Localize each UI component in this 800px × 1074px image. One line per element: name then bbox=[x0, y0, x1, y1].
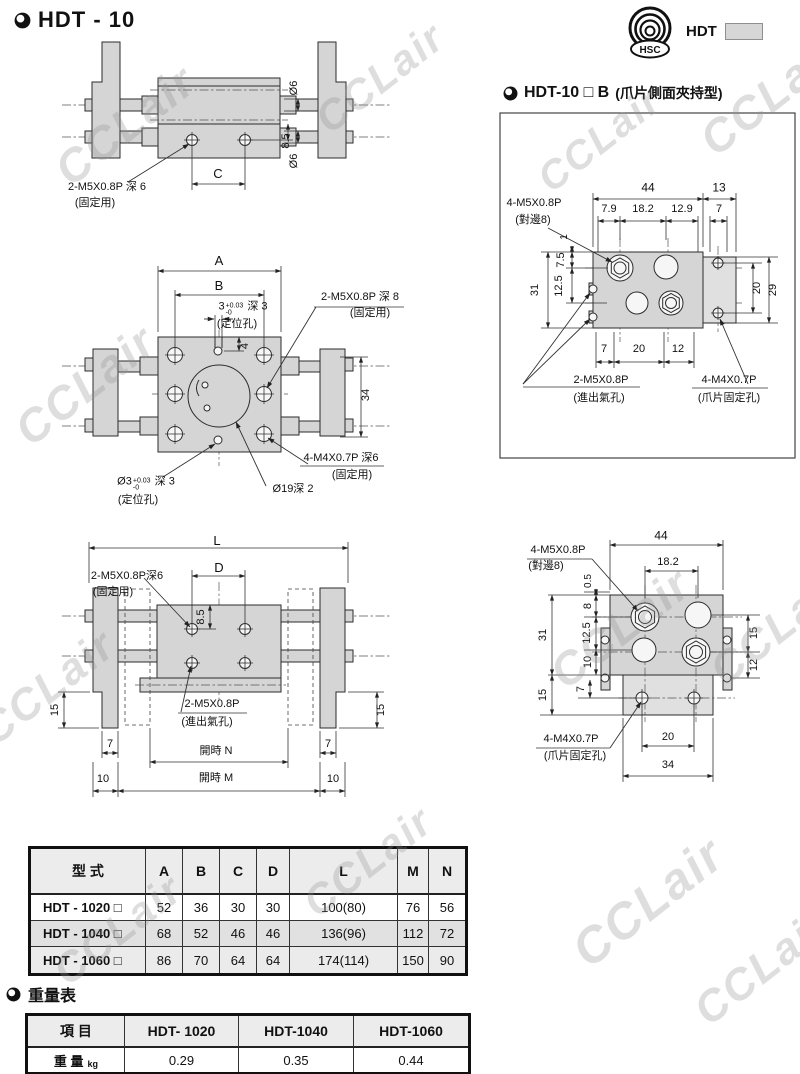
dimension-label: 8 bbox=[583, 603, 595, 609]
dimension-label: 7.9 bbox=[601, 204, 616, 216]
weight-value-cell: 0.35 bbox=[239, 1048, 354, 1072]
spec-value-cell: 112 bbox=[398, 921, 429, 947]
dimension-label: 18.2 bbox=[657, 557, 678, 569]
spec-value-cell: 52 bbox=[146, 895, 183, 921]
dimension-label: 18.2 bbox=[632, 204, 653, 216]
page-title-row: HDT - 10 bbox=[14, 7, 135, 33]
dimension-label: 2-M5X0.8P深6 bbox=[91, 571, 163, 583]
weight-value-cell: 0.29 bbox=[125, 1048, 239, 1072]
dimension-label: 44 bbox=[641, 182, 654, 195]
dimension-label: 15 bbox=[749, 627, 761, 639]
weight-section-title: 重量表 bbox=[28, 982, 76, 1006]
dimension-label: (進出氣孔) bbox=[573, 393, 624, 405]
dimension-label: (固定用) bbox=[350, 308, 390, 320]
dimension-label: Ø3+0.03-0 深 3 bbox=[117, 477, 175, 492]
weight-header-cell: HDT- 1020 bbox=[125, 1016, 239, 1048]
dimension-label: 15 bbox=[538, 689, 550, 701]
dimension-label: (爪片固定孔) bbox=[544, 751, 606, 763]
dimension-label: 2-M5X0.8P 深 8 bbox=[321, 292, 399, 304]
spec-table: 型 式ABCDLMNHDT - 1020 □52363030100(80)765… bbox=[28, 846, 468, 976]
dimension-label: 3+0.03-0 深 3 bbox=[218, 302, 267, 317]
dimension-label: 7 bbox=[576, 686, 588, 692]
spec-value-cell: 64 bbox=[220, 947, 257, 973]
dimension-label: 44 bbox=[654, 530, 667, 543]
dimension-label: C bbox=[213, 167, 222, 181]
dimension-label: 29 bbox=[768, 284, 780, 296]
dimension-label: 10 bbox=[327, 774, 339, 786]
spec-model-cell: HDT - 1060 □ bbox=[31, 947, 146, 973]
spec-value-cell: 56 bbox=[429, 895, 465, 921]
dimension-label: 4-M4X0.7P bbox=[701, 375, 756, 387]
weight-table: 項 目HDT- 1020HDT-1040HDT-1060重 量kg0.290.3… bbox=[25, 1013, 471, 1074]
weight-section-heading: 重量表 bbox=[6, 982, 76, 1006]
dimension-label: (定位孔) bbox=[118, 495, 158, 507]
spec-model-cell: HDT - 1040 □ bbox=[31, 921, 146, 947]
dimension-label: D bbox=[214, 561, 223, 575]
spec-value-cell: 64 bbox=[257, 947, 290, 973]
spec-value-cell: 100(80) bbox=[290, 895, 398, 921]
spec-value-cell: 68 bbox=[146, 921, 183, 947]
model-option-chip bbox=[725, 23, 763, 40]
dimension-label: 15 bbox=[50, 704, 62, 716]
spec-value-cell: 30 bbox=[257, 895, 290, 921]
spec-value-cell: 70 bbox=[183, 947, 220, 973]
spec-header-cell: 型 式 bbox=[31, 849, 146, 895]
dimension-label: 12.5 bbox=[582, 622, 594, 643]
spec-header-cell: B bbox=[183, 849, 220, 895]
drawing-top-view bbox=[62, 42, 392, 190]
section-b-model: HDT-10 □ B bbox=[524, 84, 609, 102]
dimension-label: A bbox=[215, 254, 224, 268]
dimension-label: B bbox=[215, 279, 224, 293]
brand-logo: HSC HDT bbox=[620, 3, 763, 59]
section-b-note: (爪片側面夾持型) bbox=[615, 83, 722, 103]
dimension-label: 34 bbox=[662, 760, 674, 772]
dimension-label: 31 bbox=[530, 284, 542, 296]
dimension-label: 31 bbox=[538, 629, 550, 641]
dimension-label: 開時 M bbox=[199, 773, 233, 785]
dimension-label: 8.5 bbox=[281, 133, 293, 148]
dimension-label: 12.5 bbox=[554, 275, 566, 296]
spec-header-cell: M bbox=[398, 849, 429, 895]
section-bullet-icon bbox=[503, 86, 518, 101]
dimension-label: L bbox=[213, 534, 220, 548]
spec-value-cell: 86 bbox=[146, 947, 183, 973]
dimension-label: 開時 N bbox=[200, 746, 233, 758]
dimension-label: 4 bbox=[240, 343, 252, 349]
spec-value-cell: 90 bbox=[429, 947, 465, 973]
section-bullet-icon bbox=[14, 12, 31, 29]
dimension-label: 4-M5X0.8P bbox=[506, 198, 561, 210]
weight-header-cell: 項 目 bbox=[28, 1016, 125, 1048]
weight-row-label: 重 量kg bbox=[28, 1048, 125, 1072]
spec-value-cell: 36 bbox=[183, 895, 220, 921]
dimension-label: (對邊8) bbox=[528, 561, 563, 573]
spec-value-cell: 30 bbox=[220, 895, 257, 921]
dimension-label: Ø19深 2 bbox=[273, 484, 314, 496]
spec-header-cell: L bbox=[290, 849, 398, 895]
dimension-label: (固定用) bbox=[332, 470, 372, 482]
dimension-label: 2-M5X0.8P bbox=[573, 375, 628, 387]
dimension-label: 8.5 bbox=[196, 609, 208, 624]
dimension-label: 20 bbox=[633, 344, 645, 356]
spec-value-cell: 76 bbox=[398, 895, 429, 921]
weight-value-cell: 0.44 bbox=[354, 1048, 468, 1072]
dimension-label: 12.9 bbox=[671, 204, 692, 216]
dimension-label: (固定用) bbox=[93, 587, 133, 599]
dimension-label: 7 bbox=[107, 739, 113, 751]
dimension-label: 7 bbox=[601, 344, 607, 356]
spec-header-cell: A bbox=[146, 849, 183, 895]
dimension-label: 15 bbox=[376, 704, 388, 716]
weight-unit: kg bbox=[88, 1059, 99, 1072]
dimension-label: 1 bbox=[560, 234, 571, 240]
brand-logo-icon: HSC bbox=[620, 3, 680, 59]
dimension-label: (爪片固定孔) bbox=[698, 393, 760, 405]
dimension-label: 7.5 bbox=[556, 252, 568, 267]
dimension-label: 13 bbox=[712, 182, 725, 195]
spec-model-cell: HDT - 1020 □ bbox=[31, 895, 146, 921]
section-bullet-icon bbox=[6, 987, 21, 1002]
dimension-label: 7 bbox=[325, 739, 331, 751]
catalog-page: HDT - 10 HSC HDT HDT-10 □ B (爪片側面夾持型) 重量… bbox=[0, 0, 800, 1074]
dimension-label: 0.5 bbox=[584, 574, 595, 588]
spec-header-cell: C bbox=[220, 849, 257, 895]
dimension-label: 12 bbox=[672, 344, 684, 356]
dimension-label: 10 bbox=[97, 774, 109, 786]
spec-value-cell: 52 bbox=[183, 921, 220, 947]
dimension-label: 2-M5X0.8P 深 6 bbox=[68, 182, 146, 194]
spec-value-cell: 46 bbox=[257, 921, 290, 947]
brand-label: HDT bbox=[686, 23, 717, 40]
page-title: HDT - 10 bbox=[38, 7, 135, 33]
spec-value-cell: 150 bbox=[398, 947, 429, 973]
dimension-label: 4-M4X0.7P 深6 bbox=[303, 453, 378, 465]
spec-value-cell: 136(96) bbox=[290, 921, 398, 947]
dimension-label: (固定用) bbox=[75, 198, 115, 210]
brand-badge-text: HSC bbox=[639, 45, 660, 56]
spec-header-cell: N bbox=[429, 849, 465, 895]
weight-header-cell: HDT-1040 bbox=[239, 1016, 354, 1048]
dimension-label: (定位孔) bbox=[217, 319, 257, 331]
section-b-heading: HDT-10 □ B (爪片側面夾持型) bbox=[503, 83, 723, 103]
dimension-label: 20 bbox=[662, 732, 674, 744]
dimension-label: 7 bbox=[716, 204, 722, 216]
dimension-label: (進出氣孔) bbox=[181, 717, 232, 729]
dimension-label: 10 bbox=[583, 656, 595, 668]
dimension-label: 20 bbox=[752, 282, 764, 294]
weight-header-cell: HDT-1060 bbox=[354, 1016, 468, 1048]
dimension-label: (對邊8) bbox=[515, 215, 550, 227]
dimension-label: 2-M5X0.8P bbox=[184, 699, 239, 711]
dimension-label: 4-M5X0.8P bbox=[530, 545, 585, 557]
dimension-label: 12 bbox=[749, 659, 761, 671]
spec-value-cell: 72 bbox=[429, 921, 465, 947]
dimension-label: Ø6 bbox=[289, 154, 301, 169]
dimension-label: 4-M4X0.7P bbox=[543, 734, 598, 746]
spec-value-cell: 46 bbox=[220, 921, 257, 947]
spec-header-cell: D bbox=[257, 849, 290, 895]
dimension-label: 34 bbox=[361, 389, 373, 401]
dimension-label: Ø6 bbox=[289, 81, 301, 96]
spec-value-cell: 174(114) bbox=[290, 947, 398, 973]
